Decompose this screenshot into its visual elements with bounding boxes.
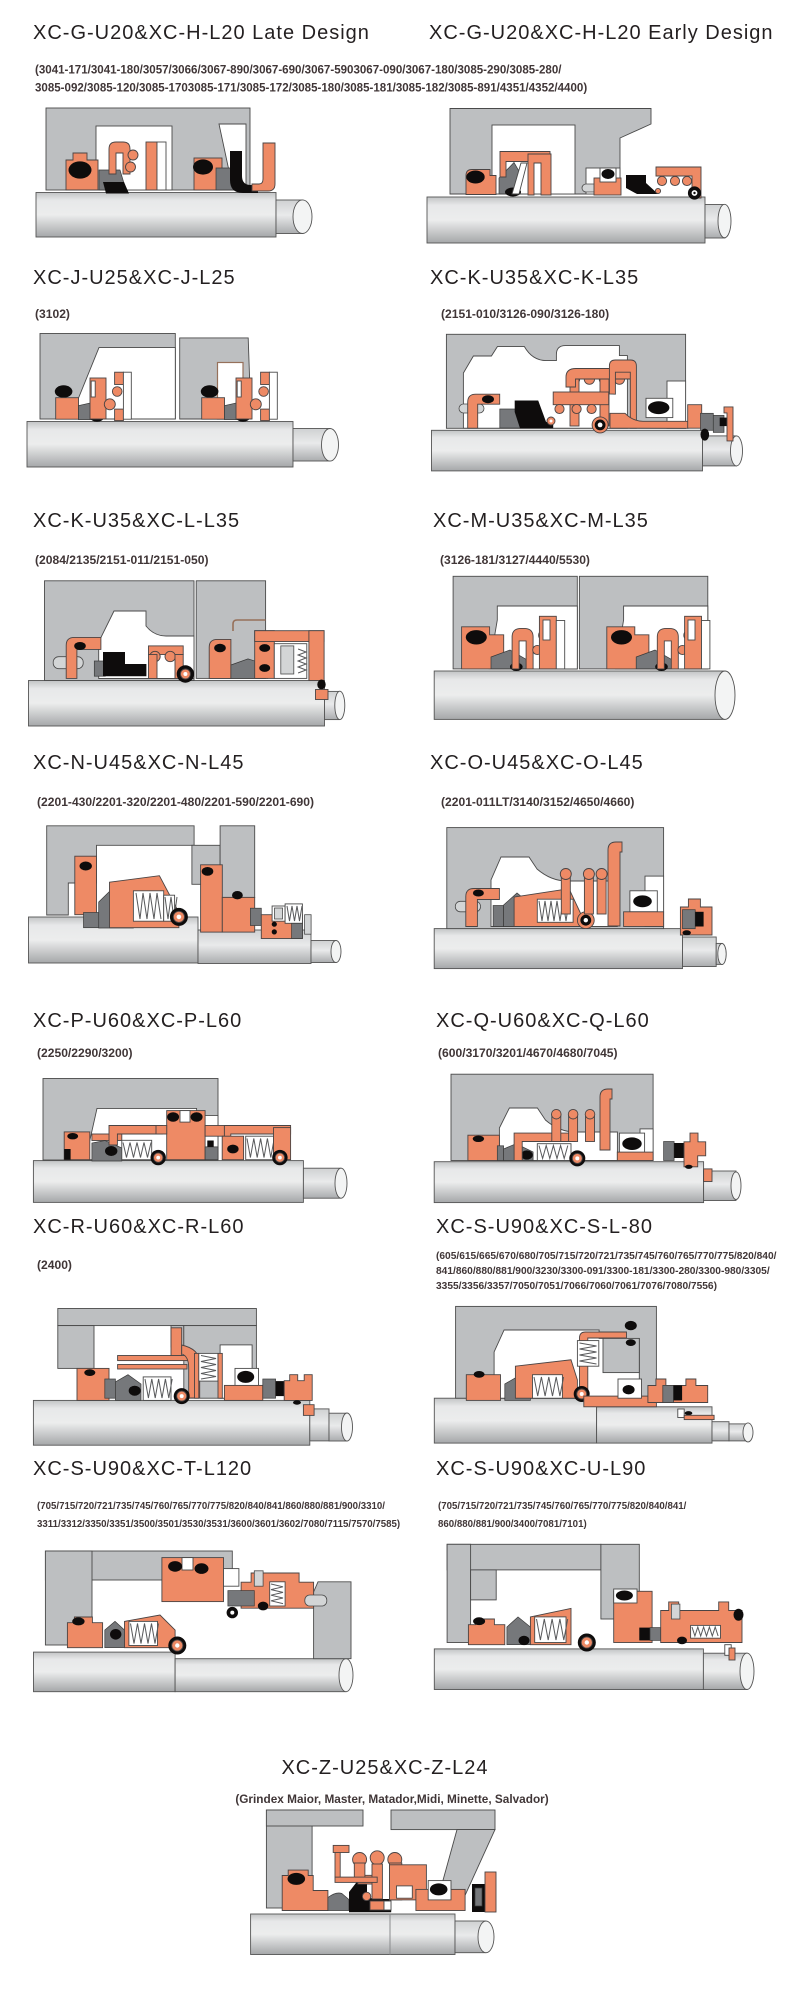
svg-text:(2201-011LT/3140/3152/4650/466: (2201-011LT/3140/3152/4650/4660) [441, 795, 634, 809]
svg-text:841/860/880/881/900/3230/3300-: 841/860/880/881/900/3230/3300-091/3300-1… [436, 1266, 770, 1277]
svg-text:XC-K-U35&XC-K-L35: XC-K-U35&XC-K-L35 [430, 267, 639, 289]
svg-text:(2201-430/2201-320/2201-480/22: (2201-430/2201-320/2201-480/2201-590/220… [37, 795, 314, 809]
svg-text:(3102): (3102) [35, 307, 70, 321]
svg-text:XC-Q-U60&XC-Q-L60: XC-Q-U60&XC-Q-L60 [436, 1010, 650, 1032]
svg-text:3311/3312/3350/3351/3500/3501/: 3311/3312/3350/3351/3500/3501/3530/3531/… [37, 1519, 400, 1530]
svg-text:XC-S-U90&XC-U-L90: XC-S-U90&XC-U-L90 [436, 1458, 646, 1480]
svg-text:(2084/2135/2151-011/2151-050): (2084/2135/2151-011/2151-050) [35, 553, 209, 567]
svg-text:XC-M-U35&XC-M-L35: XC-M-U35&XC-M-L35 [433, 510, 649, 532]
svg-text:(705/715/720/721/735/745/760/7: (705/715/720/721/735/745/760/765/770/775… [438, 1501, 687, 1512]
svg-text:XC-S-U90&XC-T-L120: XC-S-U90&XC-T-L120 [33, 1458, 252, 1480]
svg-text:(2250/2290/3200): (2250/2290/3200) [37, 1046, 133, 1060]
svg-text:(2400): (2400) [37, 1258, 72, 1272]
svg-text:XC-S-U90&XC-S-L-80: XC-S-U90&XC-S-L-80 [436, 1216, 653, 1238]
svg-text:XC-O-U45&XC-O-L45: XC-O-U45&XC-O-L45 [430, 752, 644, 774]
svg-text:XC-R-U60&XC-R-L60: XC-R-U60&XC-R-L60 [33, 1216, 245, 1238]
svg-text:XC-P-U60&XC-P-L60: XC-P-U60&XC-P-L60 [33, 1010, 242, 1032]
svg-text:(705/715/720/721/735/745/760/7: (705/715/720/721/735/745/760/765/770/775… [37, 1501, 385, 1512]
svg-text:860/880/881/900/3400/7081/7101: 860/880/881/900/3400/7081/7101) [438, 1519, 587, 1530]
svg-text:(600/3170/3201/4670/4680/7045): (600/3170/3201/4670/4680/7045) [438, 1046, 618, 1060]
svg-text:XC-G-U20&XC-H-L20 Late Design: XC-G-U20&XC-H-L20 Late Design [33, 22, 370, 44]
svg-text:(Grindex Maior, Master, Matad: (Grindex Maior, Master, Matador,Midi, Mi… [235, 1792, 548, 1806]
svg-text:XC-G-U20&XC-H-L20 Early Design: XC-G-U20&XC-H-L20 Early Design [429, 22, 774, 44]
svg-text:XC-K-U35&XC-L-L35: XC-K-U35&XC-L-L35 [33, 510, 240, 532]
svg-text:3085-092/3085-120/3085-1703085: 3085-092/3085-120/3085-1703085-171/3085-… [35, 83, 587, 95]
svg-text:3355/3356/3357/7050/7051/7066/: 3355/3356/3357/7050/7051/7066/7060/7061/… [436, 1281, 717, 1292]
svg-text:XC-J-U25&XC-J-L25: XC-J-U25&XC-J-L25 [33, 267, 236, 289]
svg-text:(3126-181/3127/4440/5530): (3126-181/3127/4440/5530) [440, 553, 590, 567]
svg-text:XC-N-U45&XC-N-L45: XC-N-U45&XC-N-L45 [33, 752, 245, 774]
svg-text:(605/615/665/670/680/705/715/7: (605/615/665/670/680/705/715/720/721/735… [436, 1251, 777, 1262]
svg-text:(3041-171/3041-180/3057/3066/3: (3041-171/3041-180/3057/3066/3067-890/30… [35, 65, 562, 77]
svg-text:(2151-010/3126-090/3126-180): (2151-010/3126-090/3126-180) [441, 307, 609, 321]
svg-text:XC-Z-U25&XC-Z-L24: XC-Z-U25&XC-Z-L24 [281, 1757, 488, 1779]
